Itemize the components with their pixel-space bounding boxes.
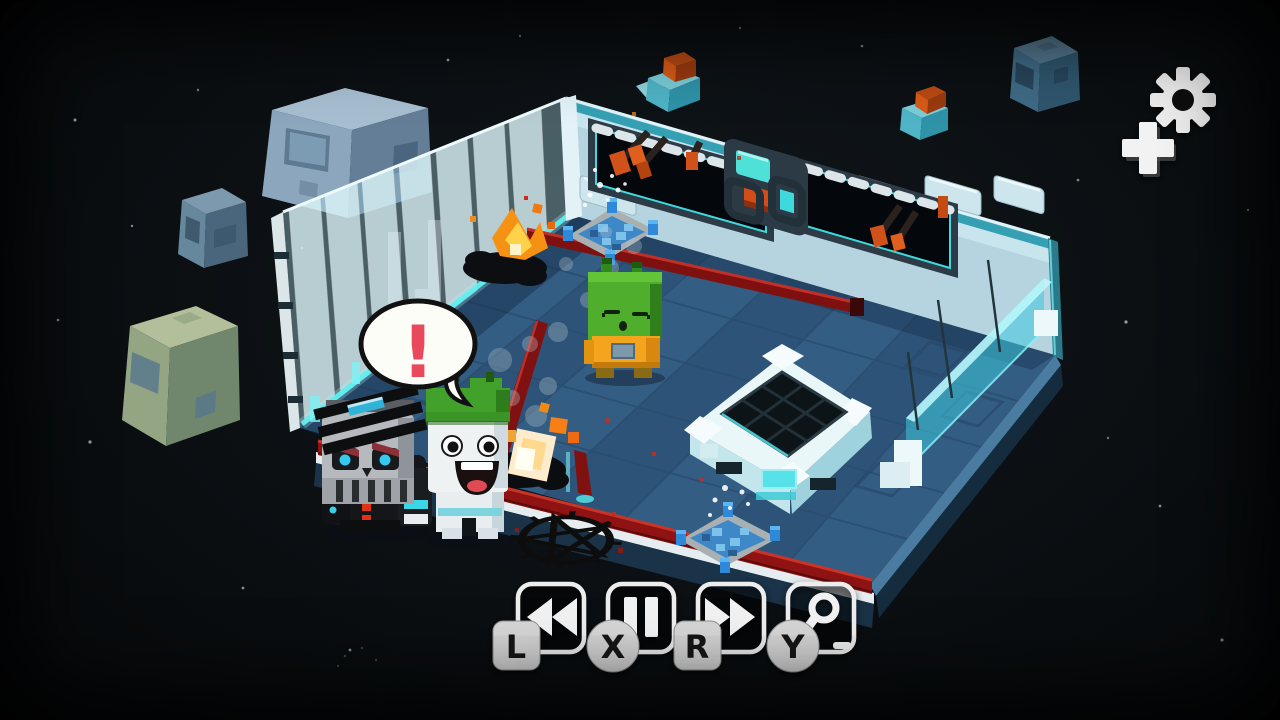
gear-icon [1150,67,1216,133]
rewind-badge: L [506,628,526,666]
zoom-badge: Y [780,628,805,666]
sleeping-alien-crew [584,258,665,386]
plus-icon [1122,122,1176,177]
game-scene: ! [0,0,1280,720]
pause-badge: X [601,628,626,666]
game-screen: ! [0,0,1280,720]
floating-debris-cube-small-blue [178,188,248,268]
game-frame: ! [0,0,1280,720]
rewind-button[interactable]: L [493,584,584,670]
floating-debris-cube-green [122,306,240,446]
fast-forward-badge: R [685,628,710,666]
speech-bubble-text: ! [402,310,435,394]
settings-button[interactable] [1122,67,1216,177]
roof-vent-right [900,86,948,140]
scared-survivor-green-cap [426,370,514,549]
floating-debris-cube-top-right [1010,36,1080,112]
roof-vent-left [636,52,700,112]
fast-forward-button[interactable]: R [674,584,764,670]
playback-controls: L X R [493,584,854,672]
skull-robot-killer [313,384,432,542]
pause-button[interactable]: X [587,584,674,672]
